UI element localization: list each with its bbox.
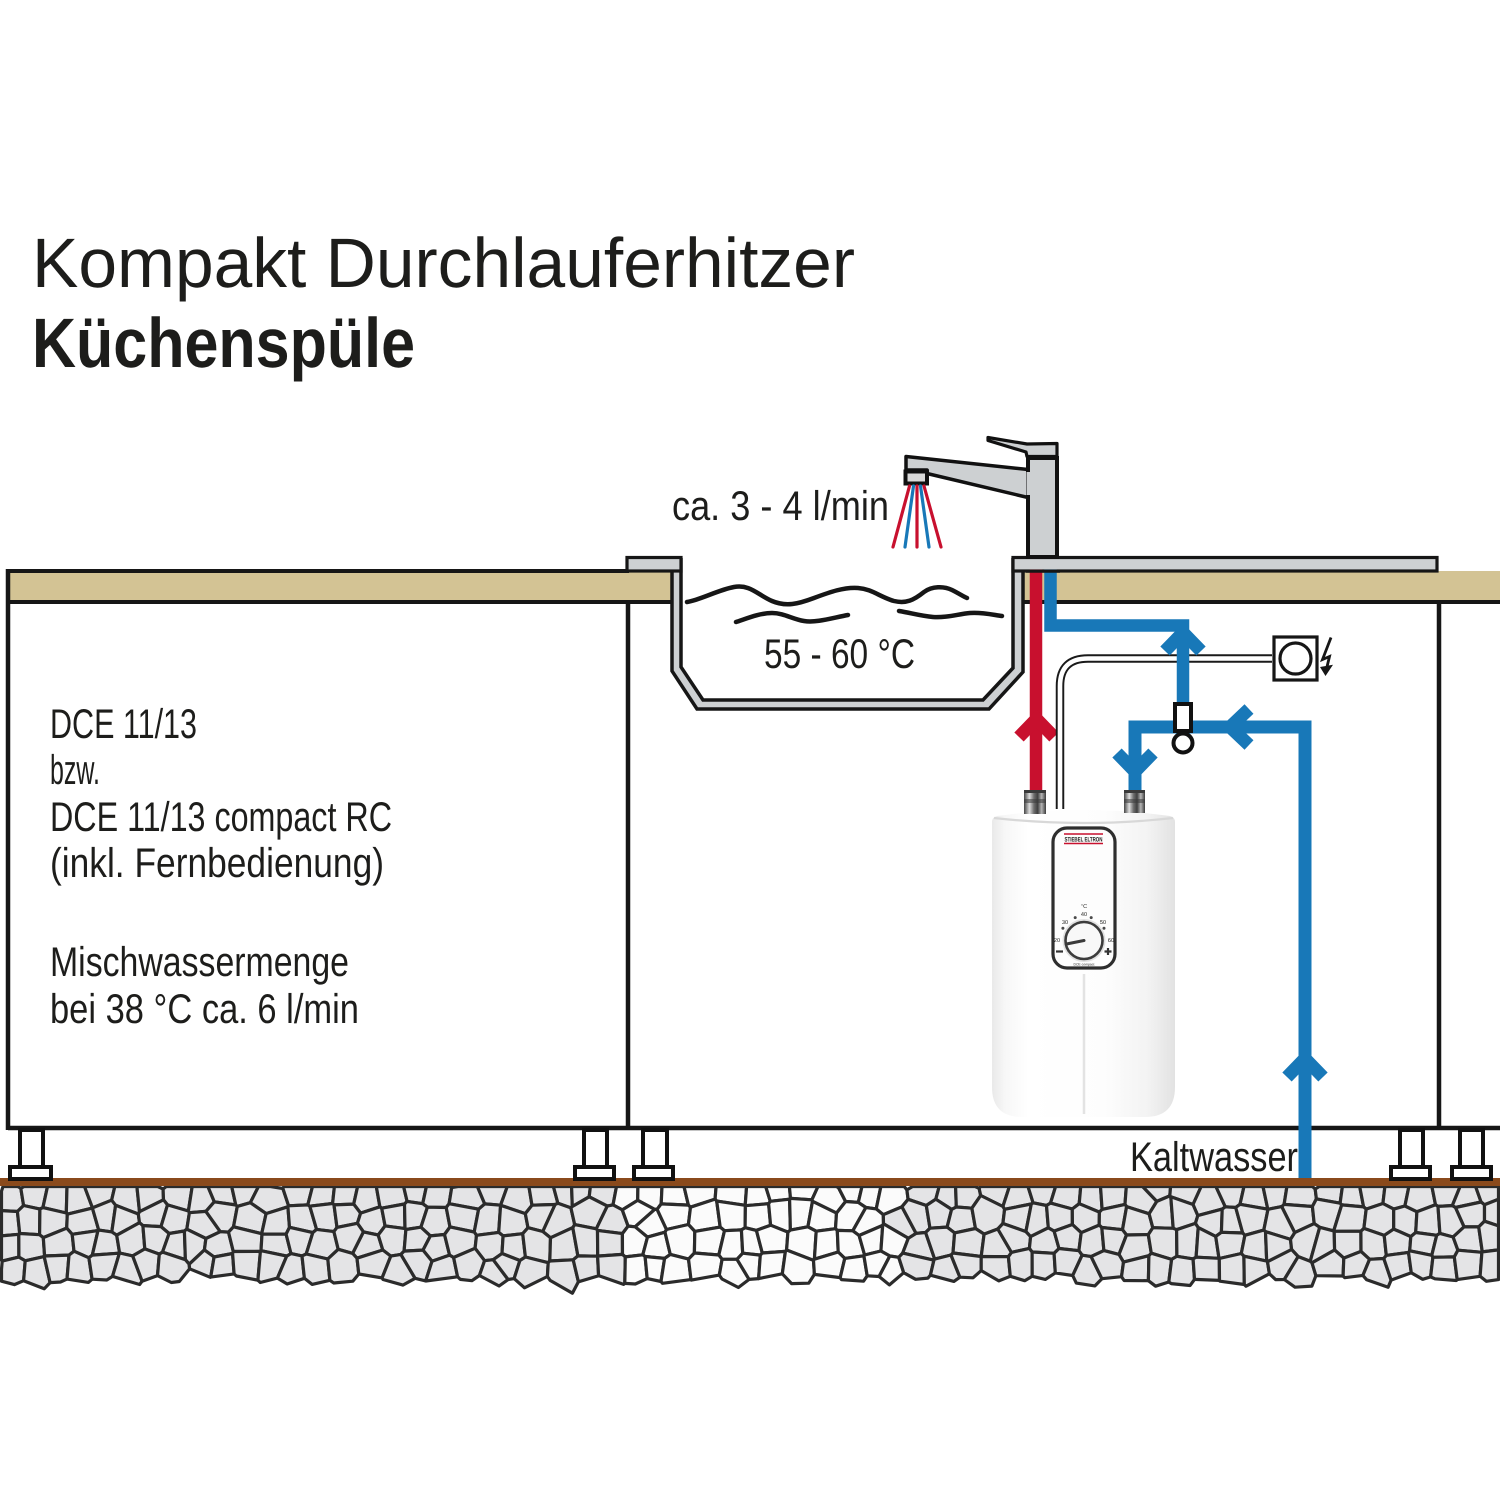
svg-text:DCE compact: DCE compact bbox=[1074, 963, 1095, 967]
svg-text:Küchenspüle: Küchenspüle bbox=[32, 304, 415, 382]
svg-text:20: 20 bbox=[1054, 938, 1060, 944]
svg-text:bzw.: bzw. bbox=[50, 746, 100, 793]
svg-text:Kompakt Durchlauferhitzer: Kompakt Durchlauferhitzer bbox=[32, 224, 855, 302]
svg-text:Mischwassermenge: Mischwassermenge bbox=[50, 938, 349, 985]
svg-text:Kaltwasser: Kaltwasser bbox=[1130, 1133, 1298, 1180]
svg-text:STIEBEL ELTRON: STIEBEL ELTRON bbox=[1065, 837, 1103, 844]
svg-text:40: 40 bbox=[1081, 912, 1087, 918]
svg-text:DCE 11/13 compact RC: DCE 11/13 compact RC bbox=[50, 793, 392, 840]
svg-text:ca. 3 - 4 l/min: ca. 3 - 4 l/min bbox=[672, 482, 889, 529]
svg-text:55 - 60 °C: 55 - 60 °C bbox=[764, 630, 915, 677]
svg-text:bei 38 °C ca. 6 l/min: bei 38 °C ca. 6 l/min bbox=[50, 985, 359, 1032]
svg-text:°C: °C bbox=[1081, 904, 1087, 910]
svg-text:30: 30 bbox=[1062, 920, 1068, 926]
svg-text:50: 50 bbox=[1100, 920, 1106, 926]
svg-text:(inkl. Fernbedienung): (inkl. Fernbedienung) bbox=[50, 839, 384, 886]
svg-text:DCE 11/13: DCE 11/13 bbox=[50, 700, 197, 747]
svg-text:60: 60 bbox=[1108, 938, 1114, 944]
